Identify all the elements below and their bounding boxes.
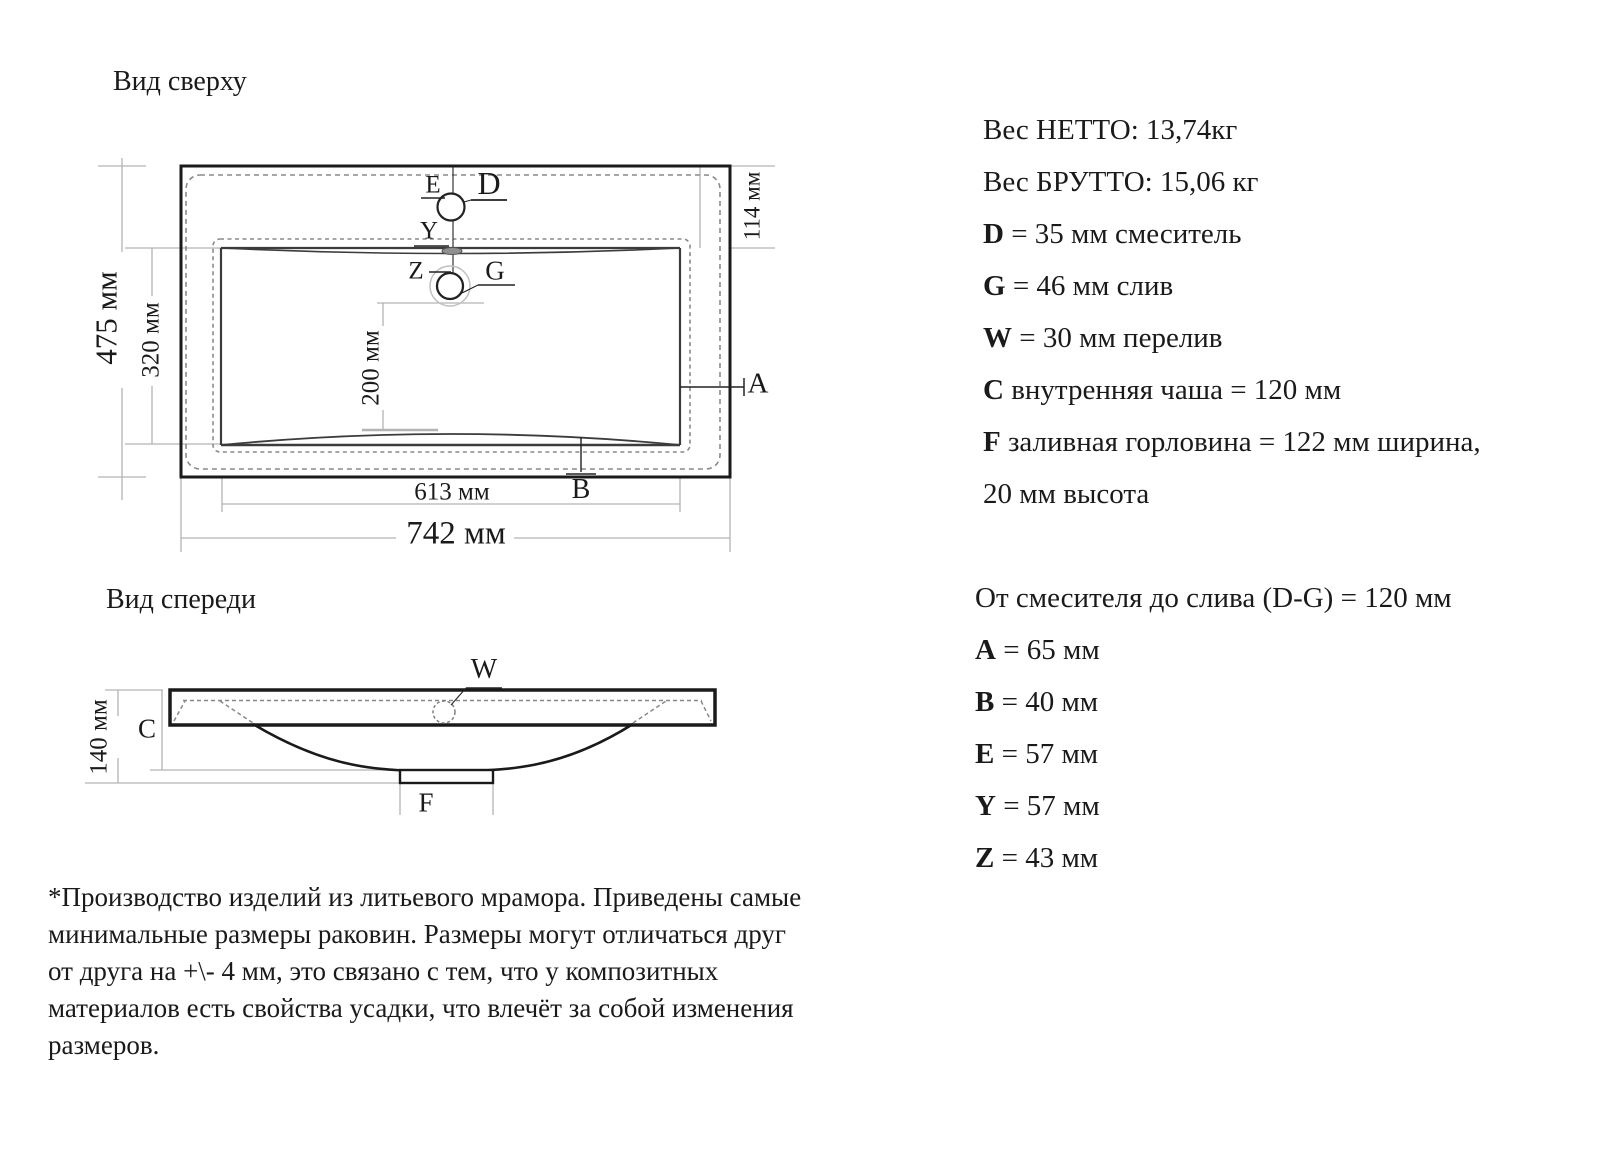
spec-line-e: E = 57 мм: [975, 728, 1452, 780]
spec-key: Y: [975, 790, 996, 822]
spec-value: 20 мм высота: [983, 478, 1149, 510]
front-view-title: Вид спереди: [106, 584, 256, 616]
spec-line-d: D = 35 мм смеситель: [983, 208, 1481, 260]
spec-line-gross-weight: Вес БРУТТО: 15,06 кг: [983, 156, 1481, 208]
filler-neck: [400, 770, 493, 783]
spec-value: = 57 мм: [994, 738, 1098, 770]
spec-line-g: G = 46 мм слив: [983, 260, 1481, 312]
footnote-line: от друга на +\- 4 мм, это связано с тем,…: [48, 953, 801, 990]
spec-value: = 40 мм: [994, 686, 1098, 718]
spec-key: E: [975, 738, 994, 770]
bowl-underside-curve: [253, 724, 633, 771]
footnote-line: минимальные размеры раковин. Размеры мог…: [48, 916, 801, 953]
spec-value: внутренняя чаша = 120 мм: [1004, 374, 1341, 406]
spec-line-y: Y = 57 мм: [975, 780, 1452, 832]
spec-key: Z: [975, 842, 994, 874]
spec-value: = 57 мм: [996, 790, 1100, 822]
spec-line-c: C внутренняя чаша = 120 мм: [983, 364, 1481, 416]
spec-value: = 30 мм перелив: [1012, 322, 1223, 354]
callout-label-w: W: [471, 656, 497, 684]
spec-value: = 43 мм: [994, 842, 1098, 874]
spec-key: B: [975, 686, 994, 718]
spec-key: F: [983, 426, 1001, 458]
spec-line-f: F заливная горловина = 122 мм ширина,: [983, 416, 1481, 468]
spec-value: От смесителя до слива (D-G) = 120 мм: [975, 582, 1452, 614]
production-footnote: *Производство изделий из литьевого мрамо…: [48, 879, 801, 1064]
spec-key: G: [983, 270, 1006, 302]
rim-profile: [170, 690, 715, 725]
spec-line-f-height: 20 мм высота: [983, 468, 1481, 520]
spec-line-a: A = 65 мм: [975, 624, 1452, 676]
footnote-line: материалов есть свойства усадки, что вле…: [48, 990, 801, 1027]
specs-secondary: От смесителя до слива (D-G) = 120 мм A =…: [975, 572, 1452, 884]
spec-value: заливная горловина = 122 мм ширина,: [1001, 426, 1481, 458]
spec-line-net-weight: Вес НЕТТО: 13,74кг: [983, 104, 1481, 156]
spec-value: = 65 мм: [996, 634, 1100, 666]
spec-key: D: [983, 218, 1004, 250]
spec-key: A: [975, 634, 996, 666]
sink-dimension-sheet: { "top_view": { "title": "Вид сверху", "…: [0, 0, 1600, 1150]
spec-line-z: Z = 43 мм: [975, 832, 1452, 884]
spec-line-dg-distance: От смесителя до слива (D-G) = 120 мм: [975, 572, 1452, 624]
footnote-line: *Производство изделий из литьевого мрамо…: [48, 879, 801, 916]
spec-value: = 46 мм слив: [1006, 270, 1174, 302]
specs-primary: Вес НЕТТО: 13,74кг Вес БРУТТО: 15,06 кг …: [983, 104, 1481, 520]
callout-label-c: C: [138, 716, 156, 743]
spec-key: C: [983, 374, 1004, 406]
spec-key: W: [983, 322, 1012, 354]
spec-value: Вес БРУТТО: 15,06 кг: [983, 166, 1258, 198]
dim-label-140: 140 мм: [87, 699, 112, 774]
spec-line-w: W = 30 мм перелив: [983, 312, 1481, 364]
spec-line-b: B = 40 мм: [975, 676, 1452, 728]
callout-label-f: F: [418, 790, 433, 817]
footnote-line: размеров.: [48, 1027, 801, 1064]
spec-value: = 35 мм смеситель: [1004, 218, 1242, 250]
spec-value: Вес НЕТТО: 13,74кг: [983, 114, 1237, 146]
